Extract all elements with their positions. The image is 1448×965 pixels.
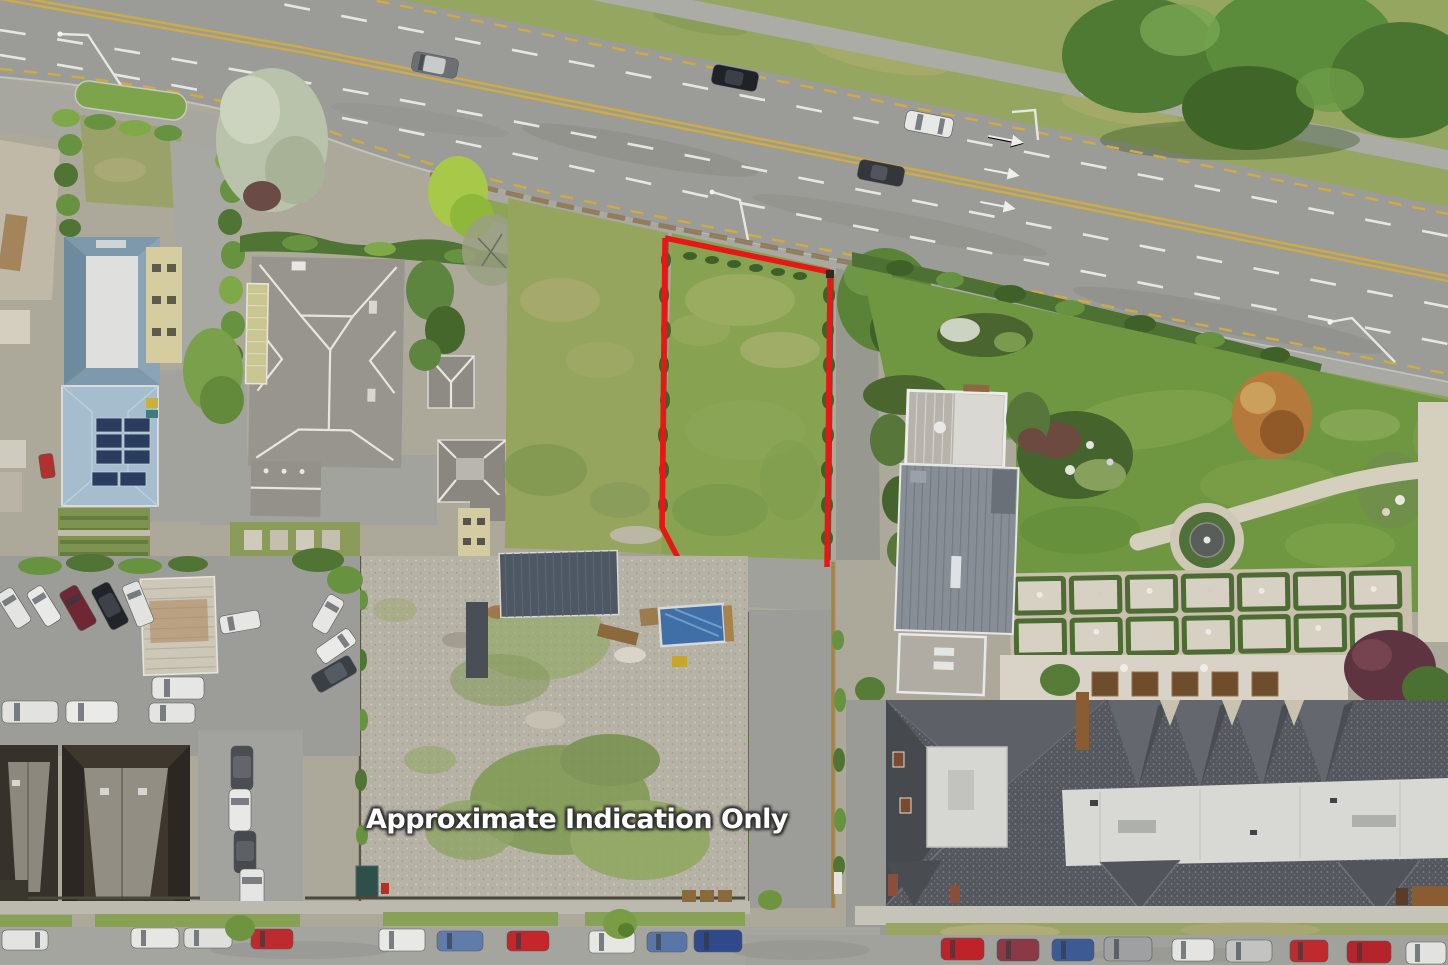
corner-shed <box>0 880 28 900</box>
skip-bin <box>356 866 378 898</box>
dirt-path <box>610 526 662 544</box>
pergola-structure <box>140 577 217 676</box>
silver-tree <box>216 68 328 212</box>
shed-dark-roof <box>499 550 619 617</box>
sidewalk <box>855 906 1448 925</box>
dark-townhouse <box>0 745 58 903</box>
aerial-photo: Approximate Indication Only <box>0 0 1448 965</box>
rear-lane <box>746 610 836 908</box>
lap-pool <box>659 603 734 646</box>
white-gate-post <box>834 872 842 894</box>
parked-car-red <box>38 453 55 479</box>
boundary-corner-post <box>826 270 834 278</box>
fountain <box>1170 503 1244 577</box>
timber-fence-panels <box>682 890 732 902</box>
conservatory <box>246 284 269 384</box>
solar-panel-house <box>62 386 158 506</box>
solar-panels <box>92 418 150 486</box>
hotel-building <box>886 692 1448 913</box>
autumn-tree <box>1232 371 1312 459</box>
large-tree <box>1062 0 1448 160</box>
cream-building <box>146 247 182 363</box>
dark-container <box>466 602 488 678</box>
blue-roof-house <box>64 237 160 385</box>
timber-deck <box>1412 886 1448 906</box>
play-equipment <box>146 398 158 408</box>
dark-townhouse <box>62 745 190 905</box>
construction-yard <box>355 550 748 905</box>
aerial-scene <box>0 0 1448 965</box>
mini-digger <box>672 656 687 667</box>
garden-bed <box>937 313 1033 357</box>
red-bin <box>381 883 389 894</box>
